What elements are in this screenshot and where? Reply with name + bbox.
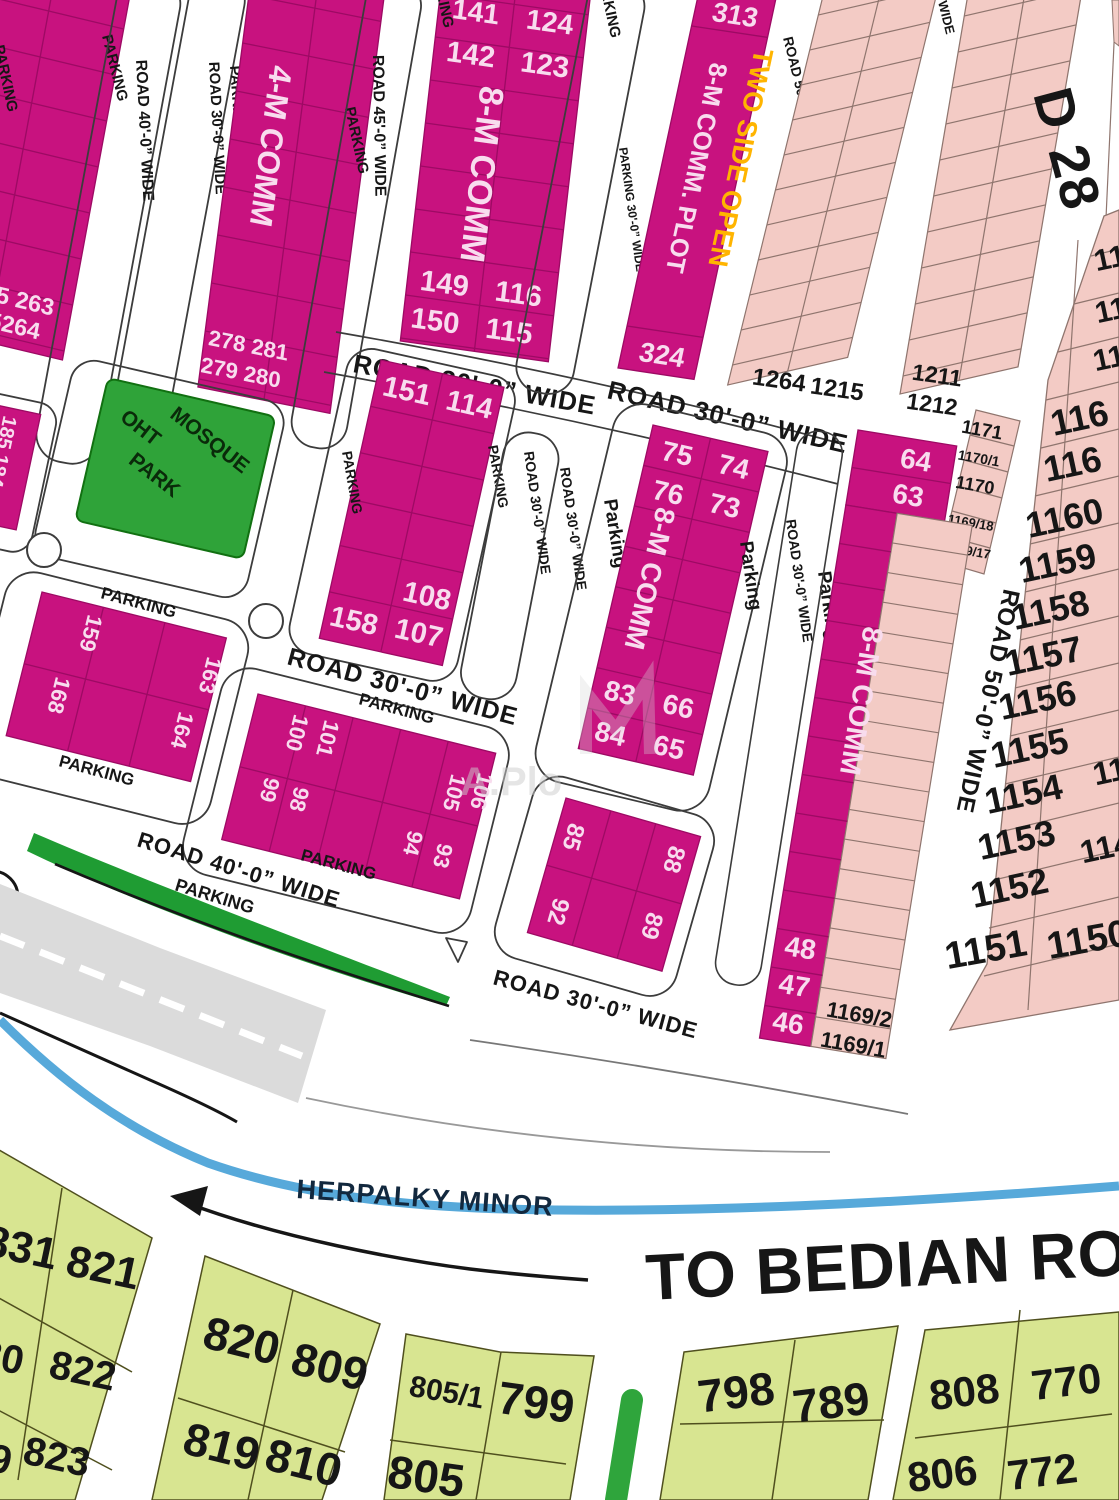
svg-text:149: 149	[418, 265, 470, 304]
svg-text:799: 799	[495, 1371, 578, 1433]
svg-text:123: 123	[519, 46, 571, 85]
svg-text:772: 772	[1005, 1444, 1080, 1499]
svg-text:A.Plo: A.Plo	[460, 760, 562, 804]
svg-text:47: 47	[777, 968, 813, 1004]
svg-text:142: 142	[445, 36, 497, 75]
svg-text:789: 789	[790, 1372, 873, 1433]
svg-text:770: 770	[1029, 1354, 1104, 1409]
svg-text:ROAD 45'-0” WIDE: ROAD 45'-0” WIDE	[369, 55, 388, 197]
svg-text:808: 808	[927, 1364, 1002, 1419]
svg-text:150: 150	[409, 302, 461, 341]
svg-text:64: 64	[898, 442, 934, 478]
svg-text:115: 115	[484, 313, 534, 351]
svg-text:124: 124	[525, 2, 576, 40]
svg-text:63: 63	[890, 478, 926, 514]
svg-text:806: 806	[905, 1446, 980, 1500]
svg-text:805: 805	[385, 1445, 468, 1500]
svg-text:116: 116	[493, 275, 543, 313]
svg-text:798: 798	[695, 1362, 778, 1423]
svg-text:46: 46	[770, 1005, 806, 1041]
svg-text:48: 48	[783, 930, 819, 966]
